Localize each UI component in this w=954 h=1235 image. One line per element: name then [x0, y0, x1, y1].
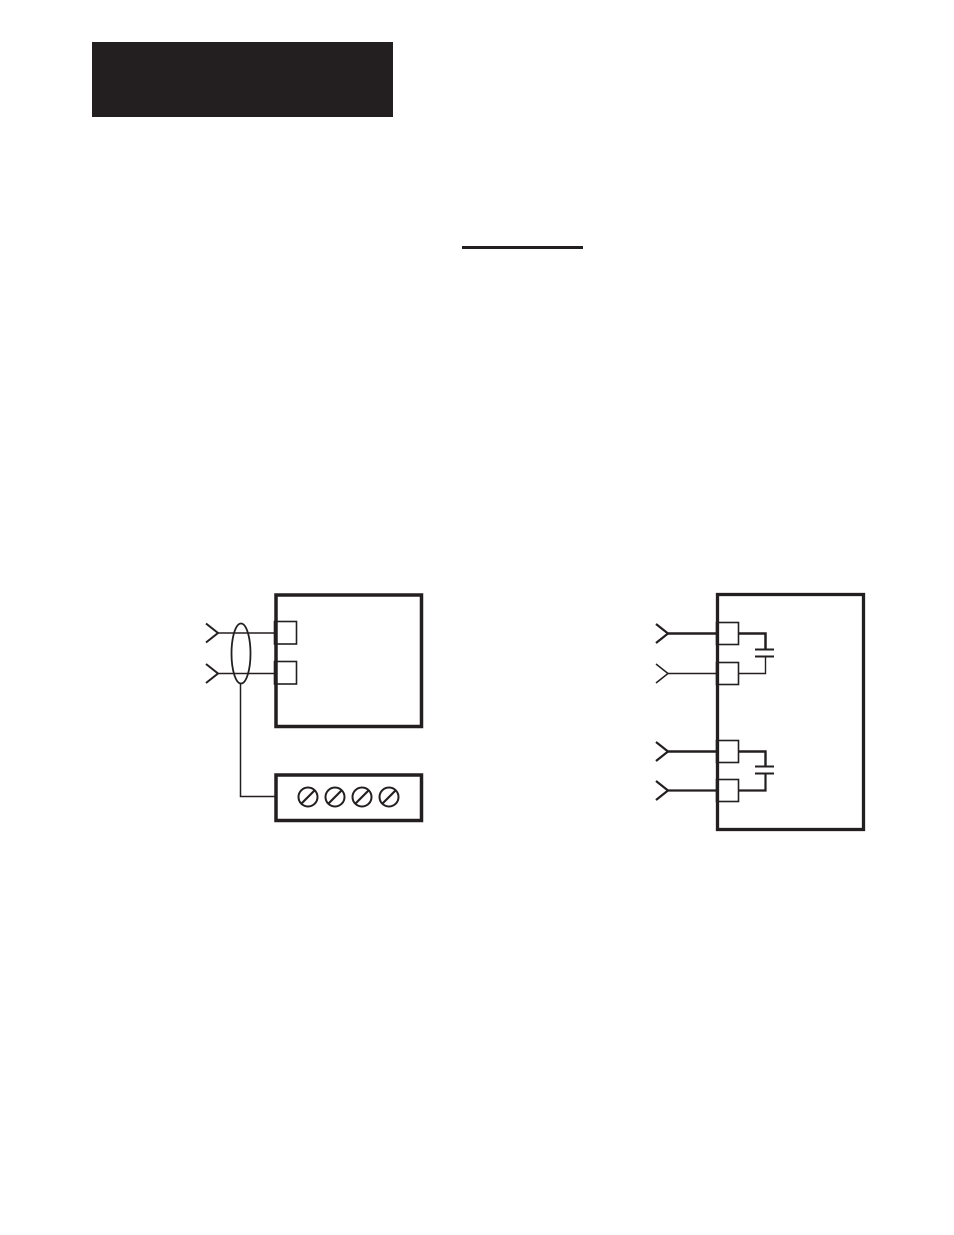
input-arrow-icon: [656, 781, 668, 800]
input-terminal-square: [717, 623, 739, 645]
input-arrow-icon: [656, 624, 668, 643]
input-arrow-icon: [206, 664, 218, 683]
filter-capacitor: [737, 634, 774, 674]
shield-drain-wire: [241, 684, 277, 797]
wiring-diagrams: [0, 0, 954, 1235]
filter-capacitor: [737, 752, 774, 791]
input-terminal-square: [275, 662, 297, 685]
input-terminal-square: [275, 622, 297, 645]
capacitor-lead: [737, 657, 766, 674]
figure-capacitor-input-wiring: [656, 595, 864, 830]
document-page: [0, 0, 954, 1235]
input-terminal-square: [717, 741, 739, 763]
plc-module-box: [276, 595, 422, 727]
input-terminal-square: [717, 780, 739, 802]
plc-module-box: [718, 595, 864, 830]
input-arrow-icon: [656, 664, 668, 683]
capacitor-lead: [737, 634, 766, 650]
input-terminal-square: [717, 663, 739, 685]
input-arrow-icon: [206, 624, 218, 643]
capacitor-lead: [737, 752, 766, 767]
figure-shielded-input-wiring: [206, 595, 422, 821]
input-arrow-icon: [656, 742, 668, 761]
capacitor-lead: [737, 774, 766, 791]
